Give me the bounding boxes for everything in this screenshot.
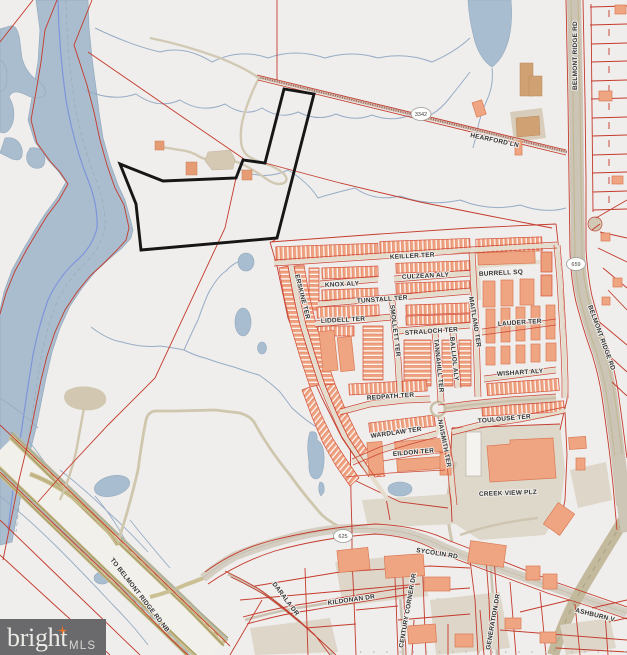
- svg-text:3342: 3342: [415, 112, 427, 118]
- svg-text:MLS: MLS: [69, 640, 96, 652]
- svg-text:BELMONT RIDGE RD: BELMONT RIDGE RD: [572, 21, 579, 90]
- svg-text:bright: bright: [7, 623, 68, 652]
- svg-text:659: 659: [571, 262, 580, 268]
- svg-text:625: 625: [338, 534, 347, 540]
